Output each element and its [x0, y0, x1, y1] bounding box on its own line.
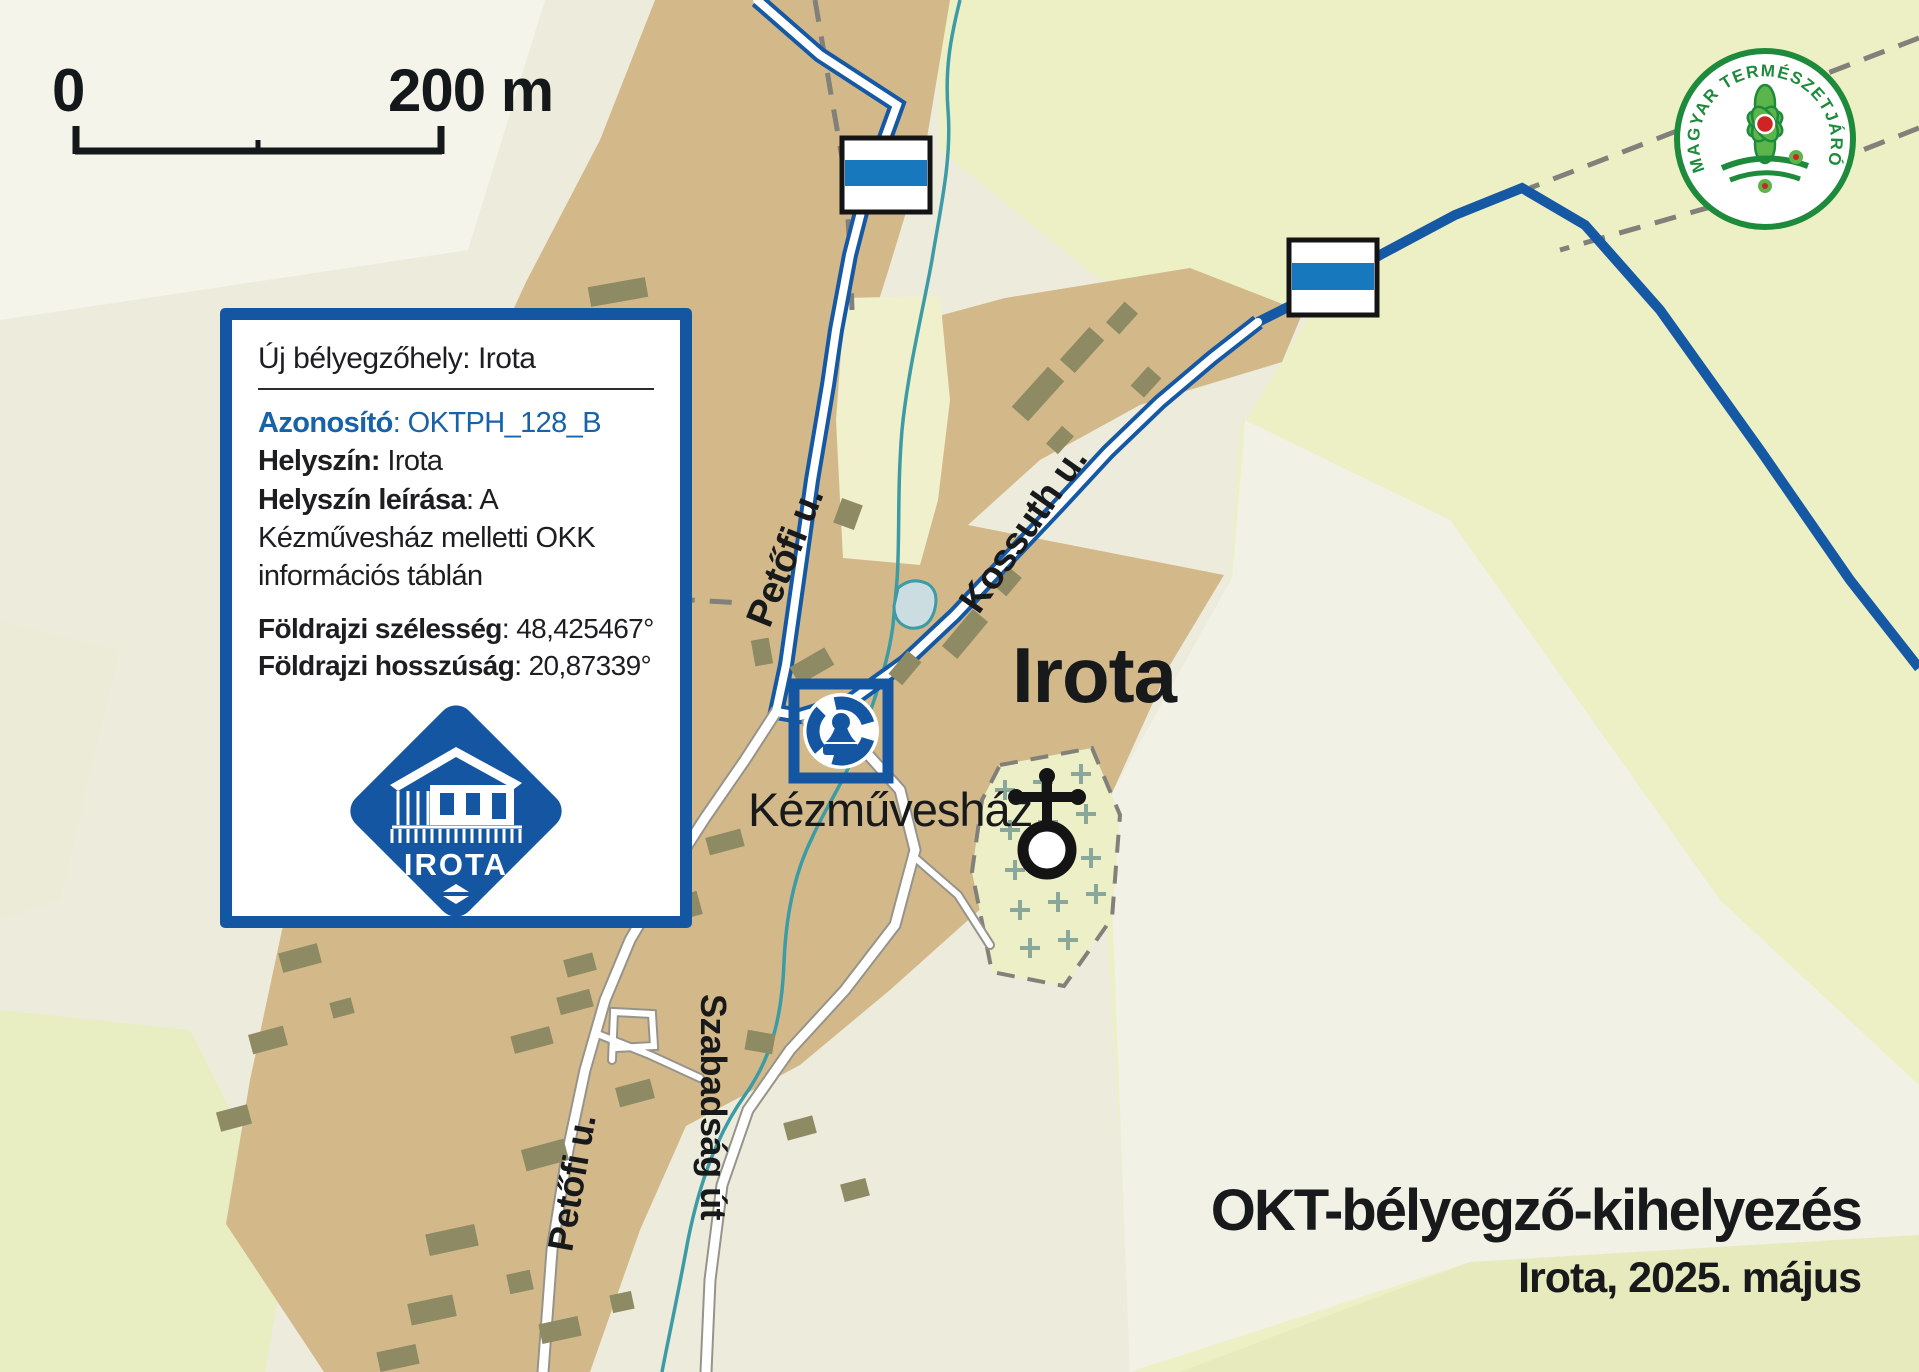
info-box-divider: [258, 388, 654, 390]
stamp-info-box: Új bélyegzőhely: Irota Azonosító: OKTPH_…: [220, 308, 692, 928]
info-row-latitude: Földrajzi szélesség: 48,425467°: [258, 611, 654, 648]
info-box-title: Új bélyegzőhely: Irota: [258, 342, 654, 376]
mtsz-logo: MAGYAR TERMÉSZETJÁRÓ SZÖVETSÉG: [1672, 46, 1858, 232]
info-row-location: Helyszín: Irota: [258, 442, 654, 480]
info-row-longitude: Földrajzi hosszúság: 20,87339°: [258, 648, 654, 685]
stamp-text: IROTA: [404, 847, 508, 882]
info-row-description: Helyszín leírása: A Kézművesház melletti…: [258, 481, 654, 596]
scalebar-zero: 0: [52, 56, 84, 125]
street-label-szabadsag: Szabadság út: [692, 994, 734, 1204]
poster-title: OKT-bélyegző-kihelyezés: [1211, 1182, 1861, 1240]
poster-footer: OKT-bélyegző-kihelyezés Irota, 2025. máj…: [1211, 1182, 1861, 1303]
pond: [894, 581, 936, 628]
stamp-logo: IROTA: [258, 695, 654, 927]
trail-blaze-marker-east: [1289, 240, 1377, 315]
scalebar-max-label: 200 m: [388, 56, 553, 125]
info-row-id: Azonosító: OKTPH_128_B: [258, 404, 654, 442]
poster-subtitle: Irota, 2025. május: [1211, 1254, 1861, 1303]
map-poster: 0 200 m MAGYAR TERMÉSZETJÁRÓ SZÖVETSÉG: [0, 0, 1919, 1372]
town-label: Irota: [1012, 630, 1176, 721]
trail-blaze-marker-north: [842, 138, 930, 212]
poi-label-kezmuveshaz: Kézművesház: [748, 782, 1032, 837]
scalebar: [70, 118, 450, 160]
